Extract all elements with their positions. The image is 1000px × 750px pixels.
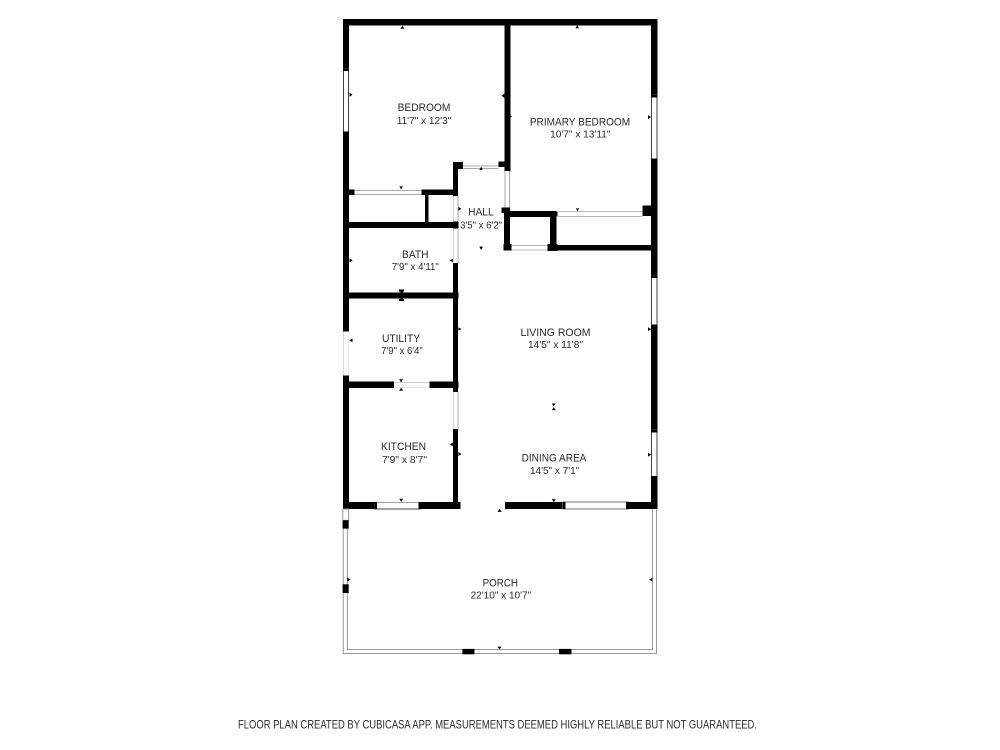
svg-text:11'7" x 12'3": 11'7" x 12'3" — [397, 115, 452, 127]
svg-text:FLOOR PLAN CREATED BY CUBICASA: FLOOR PLAN CREATED BY CUBICASA APP. MEAS… — [238, 717, 757, 731]
svg-text:HALL: HALL — [468, 207, 494, 219]
svg-text:BATH: BATH — [402, 249, 429, 261]
svg-text:PORCH: PORCH — [483, 577, 518, 589]
svg-text:UTILITY: UTILITY — [382, 333, 421, 345]
svg-text:LIVING ROOM: LIVING ROOM — [521, 327, 591, 339]
svg-text:KITCHEN: KITCHEN — [381, 441, 426, 453]
svg-text:BEDROOM: BEDROOM — [398, 102, 451, 114]
svg-text:PRIMARY BEDROOM: PRIMARY BEDROOM — [530, 117, 630, 129]
svg-text:22'10" x 10'7": 22'10" x 10'7" — [471, 589, 532, 601]
svg-text:14'5" x 7'1": 14'5" x 7'1" — [530, 465, 579, 477]
svg-text:10'7" x 13'11": 10'7" x 13'11" — [550, 129, 611, 141]
svg-text:14'5" x 11'8": 14'5" x 11'8" — [528, 339, 583, 351]
svg-text:3'5" x 6'2": 3'5" x 6'2" — [460, 220, 502, 232]
svg-text:7'9" x 4'11": 7'9" x 4'11" — [392, 261, 439, 273]
svg-text:7'9" x 8'7": 7'9" x 8'7" — [382, 454, 427, 466]
svg-text:DINING AREA: DINING AREA — [522, 452, 587, 464]
svg-text:7'9" x 6'4": 7'9" x 6'4" — [381, 345, 423, 357]
